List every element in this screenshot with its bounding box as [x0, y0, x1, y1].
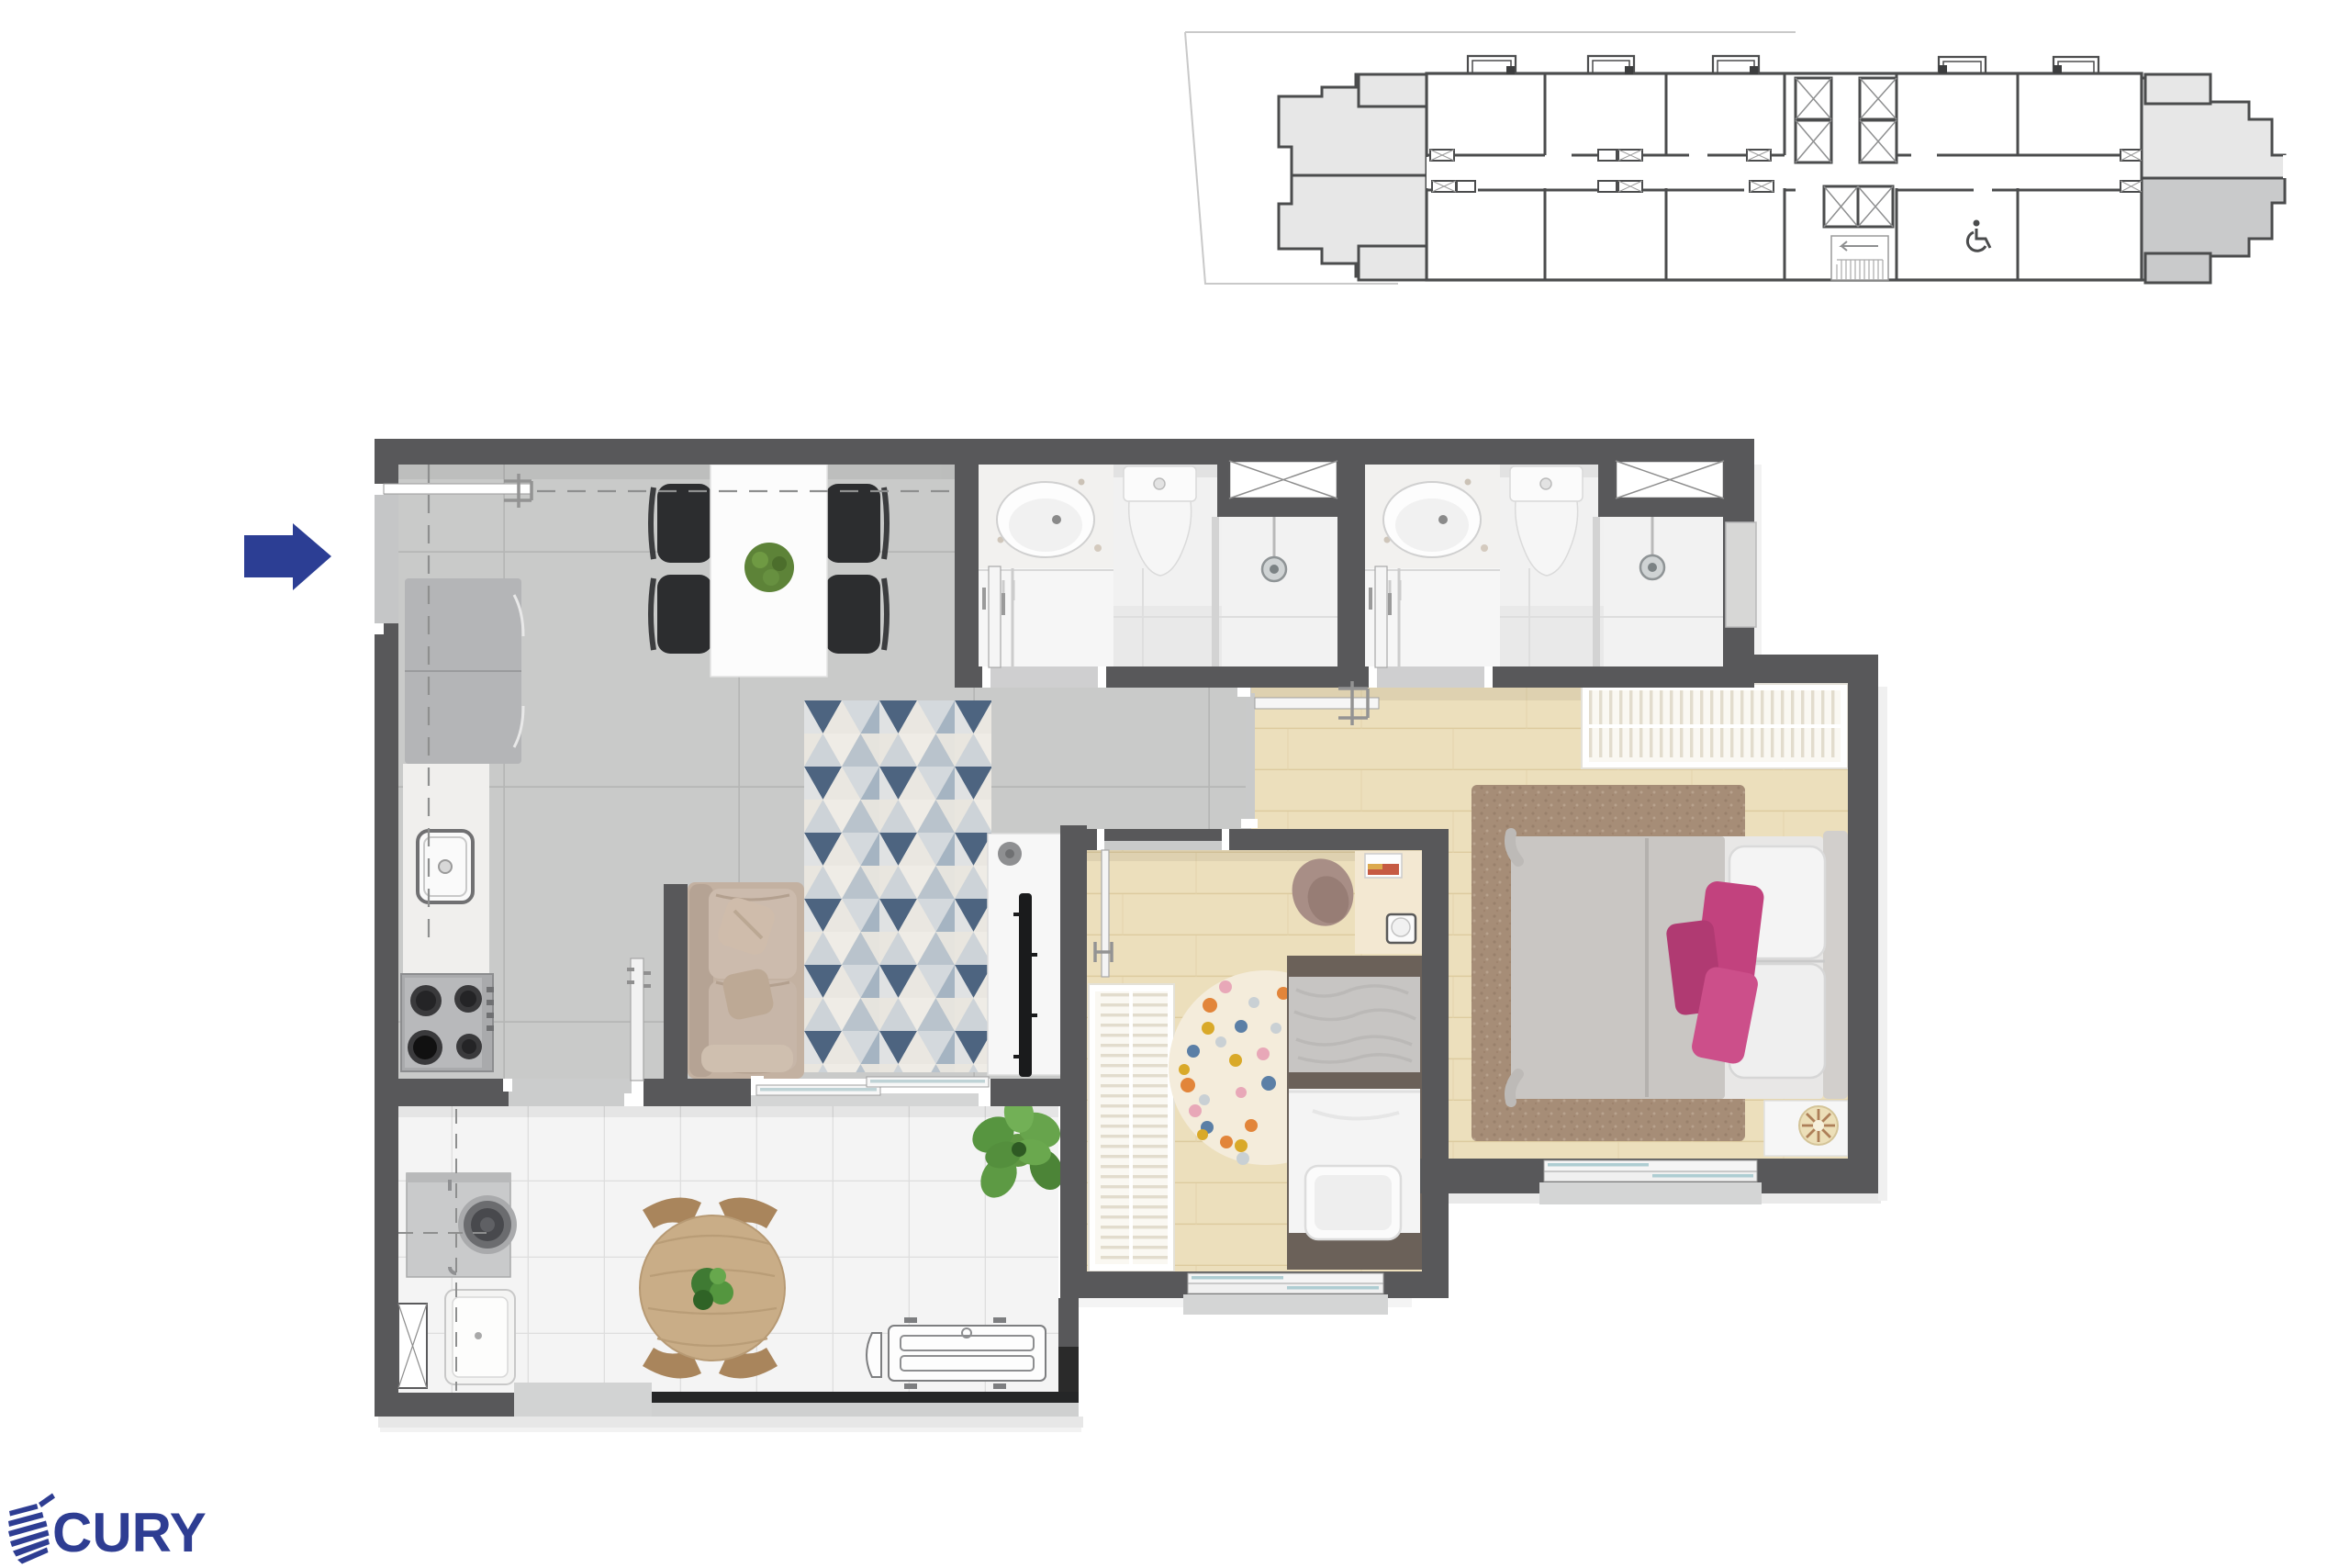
svg-text:CURY: CURY — [52, 1502, 207, 1563]
